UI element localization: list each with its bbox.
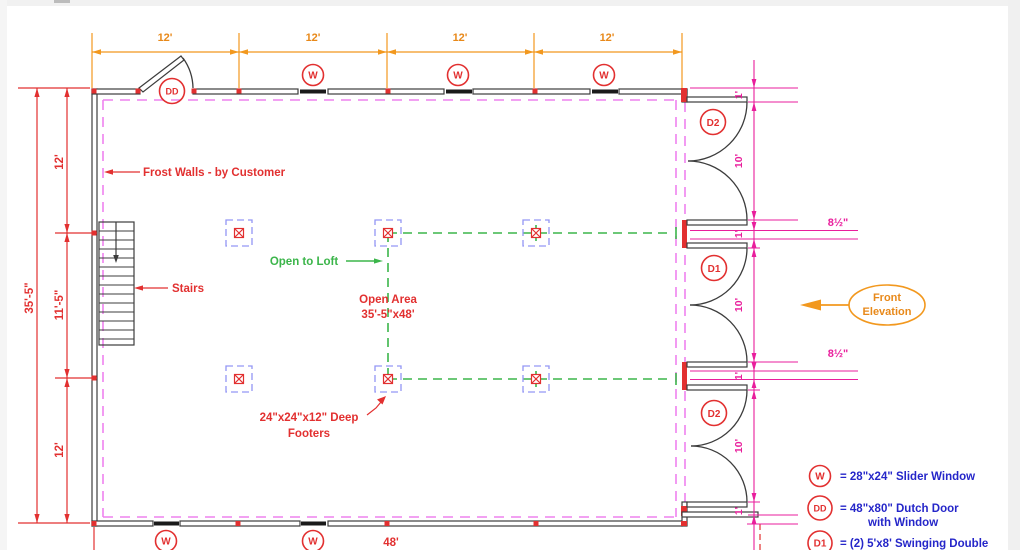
floor-plan-drawing: 12' 12' 12' 12' 35'-5" 12' 11'-5" 12' 48…: [0, 0, 1020, 550]
svg-text:W: W: [453, 71, 463, 82]
dutch-door-swing-arc: [183, 58, 193, 88]
frost-walls-label: Frost Walls - by Customer: [143, 167, 286, 179]
building-walls: [92, 88, 758, 526]
svg-text:D1: D1: [708, 264, 721, 275]
legend-dutch-door-text-1: = 48"x80" Dutch Door: [840, 503, 959, 515]
door-leaf: [687, 362, 747, 367]
top-edge-strip: [0, 0, 1020, 6]
footers-label-1: 24"x24"x12" Deep: [260, 412, 359, 424]
stairs-direction-arrow: [113, 255, 119, 263]
svg-text:DD: DD: [814, 504, 827, 514]
dim-post-width: 8½": [828, 217, 849, 229]
corner-mark: [681, 88, 687, 102]
window-bar: [300, 90, 326, 94]
left-dimension: 35'-5" 12' 11'-5" 12': [18, 88, 97, 523]
footers: [226, 220, 549, 392]
loft-opening-lines: [346, 225, 676, 387]
plan-symbols: W W W W W DD D2 D1 D2: [156, 65, 727, 550]
dim-right-10ft: 10': [733, 298, 745, 312]
legend: W = 28"x24" Slider Window DD = 48"x80" D…: [808, 466, 988, 550]
door-leaf: [687, 385, 747, 390]
open-to-loft-label: Open to Loft: [270, 256, 339, 268]
left-wall: [92, 89, 97, 526]
svg-text:W: W: [815, 472, 825, 483]
legend-window-text: = 28"x24" Slider Window: [840, 471, 975, 483]
footers-label-2: Footers: [288, 428, 330, 440]
front-elevation-label-1: Front: [873, 292, 901, 304]
dim-right-10ft: 10': [733, 154, 745, 168]
cropped-artifact: [54, 0, 70, 3]
stairs-label: Stairs: [172, 283, 204, 295]
svg-text:W: W: [161, 537, 171, 548]
dim-top-2: 12': [306, 32, 321, 44]
wall-post: [682, 220, 687, 248]
open-to-loft-arrowhead: [374, 258, 383, 263]
dim-left-2: 11'-5": [54, 290, 66, 321]
footer: [226, 220, 252, 246]
left-edge-strip: [0, 0, 7, 550]
dim-left-1: 12': [54, 154, 66, 170]
dim-right-1ft: 1': [733, 507, 745, 515]
svg-text:D2: D2: [707, 118, 720, 129]
open-area-label-2: 35'-5"x48': [361, 309, 414, 321]
dim-left-total: 35'-5": [24, 282, 36, 313]
dim-right-10ft: 10': [733, 439, 745, 453]
window-bar: [301, 522, 326, 526]
dim-post-width: 8½": [828, 348, 849, 360]
door-leaf: [687, 502, 747, 507]
bottom-dimension: 48': [94, 524, 760, 550]
svg-text:DD: DD: [166, 87, 179, 97]
floor-plan-page: 12' 12' 12' 12' 35'-5" 12' 11'-5" 12' 48…: [0, 0, 1020, 550]
open-area-label-1: Open Area: [359, 294, 417, 306]
wall-post: [682, 362, 687, 390]
window-bar: [154, 522, 179, 526]
bottom-right-return-wall: [682, 512, 758, 517]
dim-top-4: 12': [600, 32, 615, 44]
dim-bottom-total: 48': [383, 537, 399, 549]
front-elevation-callout: Front Elevation: [800, 285, 925, 325]
svg-text:D1: D1: [814, 539, 827, 550]
annotations: Frost Walls - by Customer Stairs Open to…: [104, 167, 417, 440]
stairs: [99, 222, 134, 345]
dim-right-1ft: 1': [733, 91, 745, 99]
legend-dutch-door-text-2: with Window: [867, 517, 938, 529]
front-elevation-label-2: Elevation: [863, 306, 912, 318]
wall-joint-marks: [92, 89, 688, 527]
dim-right-1ft: 1': [733, 230, 745, 238]
legend-door1-text: = (2) 5'x8' Swinging Double: [840, 538, 988, 550]
door-leaf: [687, 220, 747, 225]
footers-leader-arrowhead: [377, 396, 386, 405]
window-bar: [446, 90, 472, 94]
dim-right-1ft: 1': [733, 372, 745, 380]
svg-text:W: W: [599, 71, 609, 82]
right-edge-strip: [1008, 0, 1020, 550]
svg-text:W: W: [308, 71, 318, 82]
dim-top-1: 12': [158, 32, 173, 44]
window-bar: [592, 90, 618, 94]
dim-top-3: 12': [453, 32, 468, 44]
svg-text:W: W: [308, 537, 318, 548]
footer: [375, 220, 401, 246]
svg-text:D2: D2: [708, 409, 721, 420]
door-leaf: [687, 243, 747, 248]
dim-left-3: 12': [54, 442, 66, 458]
footer: [226, 366, 252, 392]
front-elevation-arrowhead: [800, 300, 821, 311]
